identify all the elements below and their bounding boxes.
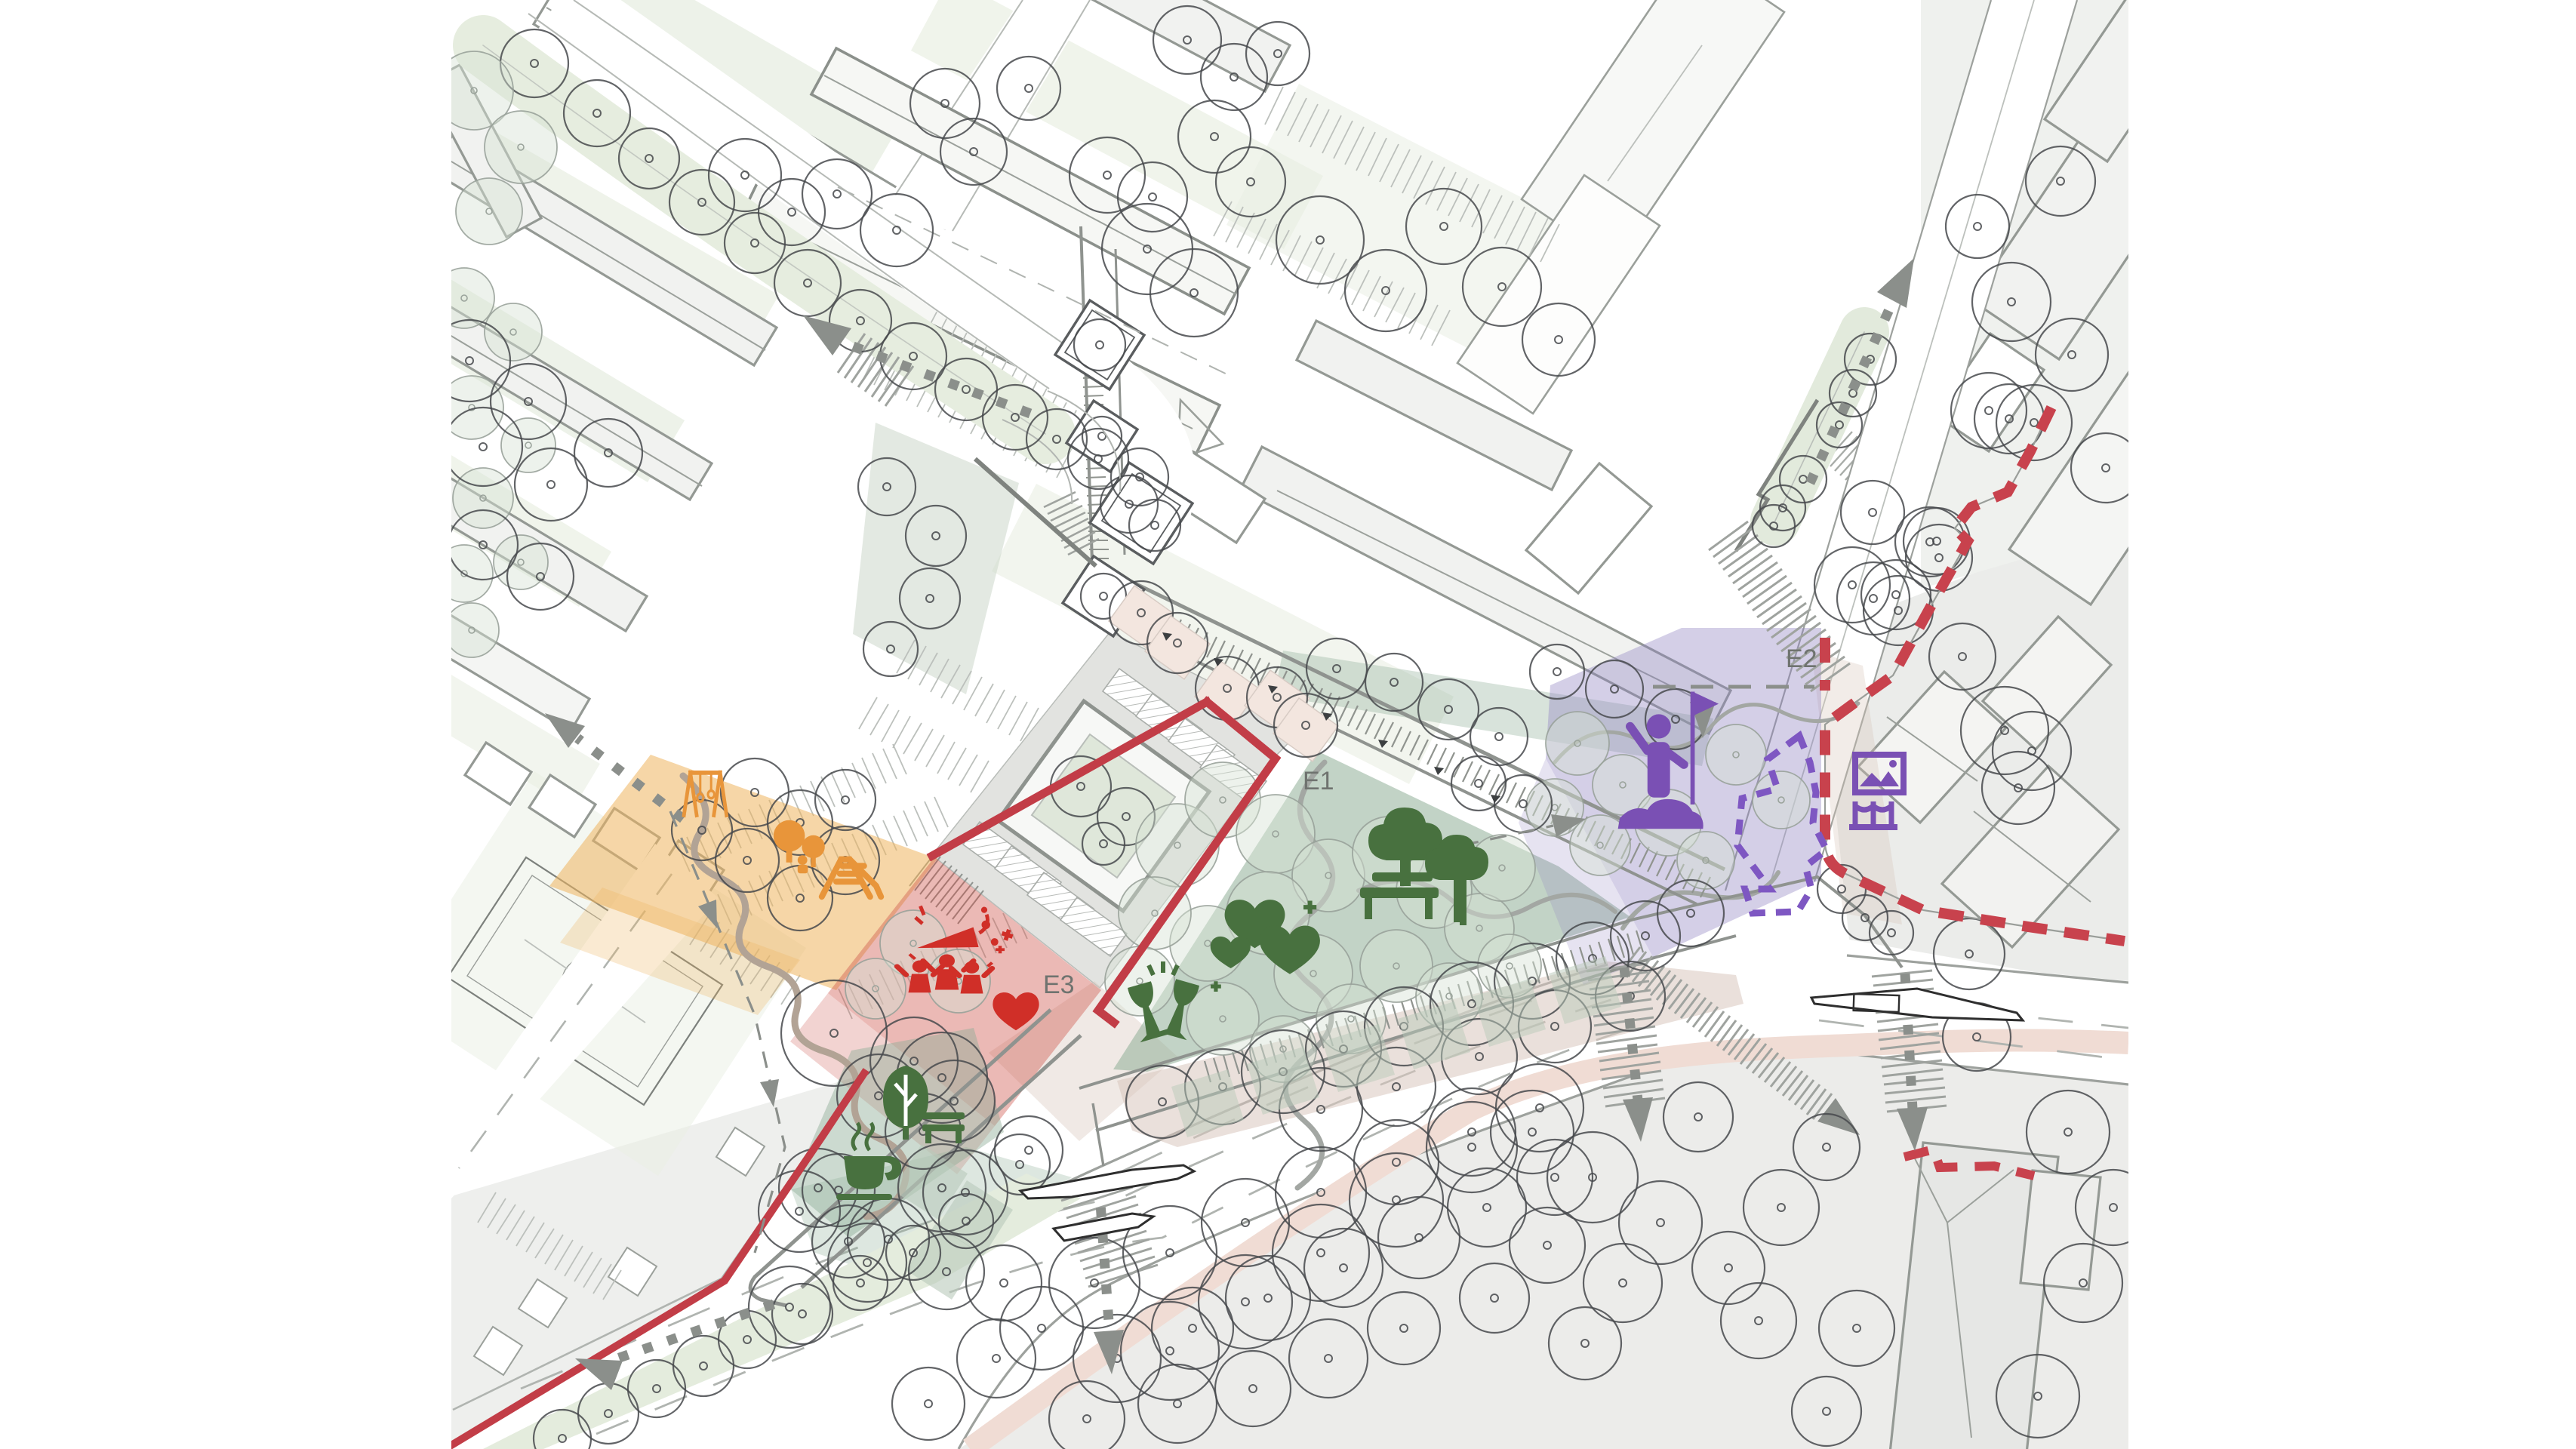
svg-text:E2: E2 (1786, 645, 1817, 673)
svg-text:E3: E3 (1043, 971, 1075, 999)
svg-text:E1: E1 (1303, 767, 1334, 795)
